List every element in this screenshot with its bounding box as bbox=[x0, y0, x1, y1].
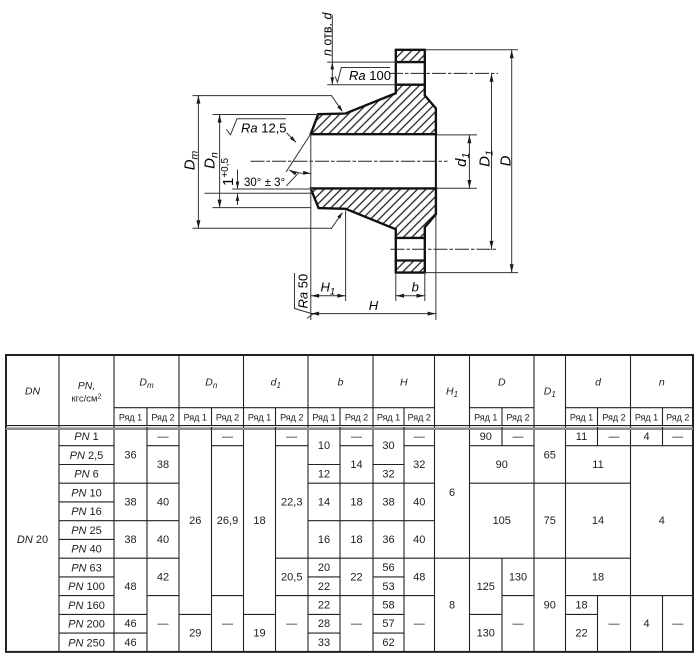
svg-text:d1: d1 bbox=[453, 153, 472, 167]
svg-text:Ряд 1: Ряд 1 bbox=[474, 413, 497, 423]
svg-text:Ряд 1: Ряд 1 bbox=[119, 413, 142, 423]
svg-text:PN 1: PN 1 bbox=[74, 431, 98, 443]
svg-text:28: 28 bbox=[318, 618, 330, 630]
svg-text:Ряд 1: Ряд 1 bbox=[248, 413, 271, 423]
svg-text:14: 14 bbox=[350, 459, 362, 471]
svg-text:32: 32 bbox=[413, 459, 425, 471]
svg-text:125: 125 bbox=[477, 581, 495, 593]
svg-text:10: 10 bbox=[318, 440, 330, 452]
svg-text:Ряд 2: Ряд 2 bbox=[280, 413, 303, 423]
svg-text:—: — bbox=[222, 431, 233, 443]
svg-text:DN: DN bbox=[25, 386, 41, 398]
svg-text:26: 26 bbox=[189, 515, 201, 527]
svg-text:57: 57 bbox=[382, 618, 394, 630]
svg-text:—: — bbox=[513, 431, 524, 443]
svg-text:65: 65 bbox=[544, 450, 556, 462]
svg-text:n: n bbox=[659, 377, 665, 389]
svg-text:18: 18 bbox=[350, 534, 362, 546]
svg-text:PN 6: PN 6 bbox=[74, 469, 98, 481]
svg-text:53: 53 bbox=[382, 581, 394, 593]
svg-text:38: 38 bbox=[124, 497, 136, 509]
svg-text:—: — bbox=[158, 618, 169, 630]
svg-text:Ряд 1: Ряд 1 bbox=[312, 413, 335, 423]
svg-text:b: b bbox=[338, 377, 344, 389]
svg-text:Dm: Dm bbox=[139, 377, 154, 391]
svg-text:40: 40 bbox=[413, 534, 425, 546]
svg-text:PN 25: PN 25 bbox=[71, 525, 102, 537]
svg-text:130: 130 bbox=[477, 628, 495, 640]
svg-text:Ra 100: Ra 100 bbox=[349, 68, 391, 83]
svg-text:D1: D1 bbox=[477, 150, 496, 167]
svg-text:—: — bbox=[158, 431, 169, 443]
svg-text:46: 46 bbox=[124, 618, 136, 630]
svg-text:PN 100: PN 100 bbox=[68, 581, 105, 593]
svg-text:Ряд 1: Ряд 1 bbox=[377, 413, 400, 423]
svg-text:18: 18 bbox=[350, 497, 362, 509]
svg-text:20,5: 20,5 bbox=[281, 571, 302, 583]
svg-text:—: — bbox=[414, 431, 425, 443]
svg-text:d1: d1 bbox=[271, 377, 281, 391]
svg-text:22,3: 22,3 bbox=[281, 497, 302, 509]
svg-text:—: — bbox=[672, 431, 683, 443]
svg-text:40: 40 bbox=[157, 534, 169, 546]
svg-text:29: 29 bbox=[189, 628, 201, 640]
svg-text:4: 4 bbox=[643, 618, 649, 630]
svg-text:Ряд 2: Ряд 2 bbox=[506, 413, 529, 423]
svg-text:18: 18 bbox=[592, 571, 604, 583]
svg-text:Ряд 1: Ряд 1 bbox=[570, 413, 593, 423]
svg-text:—: — bbox=[609, 618, 620, 630]
svg-text:32: 32 bbox=[382, 468, 394, 480]
svg-text:14: 14 bbox=[318, 497, 330, 509]
svg-text:d: d bbox=[595, 377, 602, 389]
svg-text:48: 48 bbox=[413, 571, 425, 583]
svg-text:22: 22 bbox=[350, 571, 362, 583]
svg-text:Ra 12,5: Ra 12,5 bbox=[241, 120, 287, 135]
svg-text:—: — bbox=[672, 618, 683, 630]
svg-text:33: 33 bbox=[318, 637, 330, 649]
svg-text:12: 12 bbox=[318, 468, 330, 480]
svg-text:DN 20: DN 20 bbox=[17, 534, 48, 546]
svg-text:кгс/см2: кгс/см2 bbox=[72, 394, 102, 405]
svg-text:H: H bbox=[369, 298, 379, 313]
svg-text:40: 40 bbox=[157, 497, 169, 509]
svg-text:Ряд 2: Ряд 2 bbox=[216, 413, 239, 423]
svg-text:PN 2,5: PN 2,5 bbox=[70, 450, 104, 462]
svg-text:—: — bbox=[222, 618, 233, 630]
svg-text:n отв. d: n отв. d bbox=[321, 12, 335, 56]
svg-text:4: 4 bbox=[659, 515, 665, 527]
svg-text:Dn: Dn bbox=[202, 152, 221, 169]
svg-text:H1: H1 bbox=[446, 386, 458, 400]
svg-text:90: 90 bbox=[480, 431, 492, 443]
svg-text:38: 38 bbox=[124, 534, 136, 546]
svg-text:22: 22 bbox=[575, 628, 587, 640]
svg-text:—: — bbox=[286, 431, 297, 443]
svg-text:—: — bbox=[609, 431, 620, 443]
svg-text:48: 48 bbox=[124, 581, 136, 593]
svg-text:36: 36 bbox=[124, 450, 136, 462]
svg-text:14: 14 bbox=[592, 515, 604, 527]
svg-text:b: b bbox=[412, 280, 419, 295]
svg-text:105: 105 bbox=[493, 515, 511, 527]
svg-text:D: D bbox=[498, 155, 515, 166]
svg-text:PN 200: PN 200 bbox=[68, 619, 105, 631]
svg-text:—: — bbox=[351, 618, 362, 630]
svg-text:D1: D1 bbox=[544, 386, 556, 400]
svg-text:16: 16 bbox=[318, 534, 330, 546]
svg-text:75: 75 bbox=[544, 515, 556, 527]
svg-text:—: — bbox=[351, 431, 362, 443]
svg-text:18: 18 bbox=[575, 600, 587, 612]
svg-text:—: — bbox=[414, 618, 425, 630]
svg-text:Ряд 2: Ряд 2 bbox=[666, 413, 689, 423]
svg-text:58: 58 bbox=[382, 600, 394, 612]
svg-text:Ряд 2: Ряд 2 bbox=[151, 413, 174, 423]
svg-text:40: 40 bbox=[413, 497, 425, 509]
svg-text:PN 16: PN 16 bbox=[71, 506, 102, 518]
svg-text:PN 10: PN 10 bbox=[71, 487, 102, 499]
svg-text:90: 90 bbox=[544, 600, 556, 612]
svg-text:PN 63: PN 63 bbox=[71, 562, 102, 574]
svg-text:H: H bbox=[400, 377, 408, 389]
svg-text:46: 46 bbox=[124, 637, 136, 649]
svg-text:38: 38 bbox=[382, 497, 394, 509]
svg-text:Ряд 2: Ряд 2 bbox=[408, 413, 431, 423]
svg-text:D: D bbox=[498, 377, 506, 389]
svg-text:Dm: Dm bbox=[182, 150, 201, 170]
svg-text:PN 250: PN 250 bbox=[68, 637, 105, 649]
svg-text:18: 18 bbox=[253, 515, 265, 527]
svg-text:8: 8 bbox=[449, 600, 455, 612]
svg-text:26,9: 26,9 bbox=[217, 515, 238, 527]
svg-text:30° ± 3°: 30° ± 3° bbox=[244, 177, 285, 189]
svg-text:PN 40: PN 40 bbox=[71, 544, 102, 556]
svg-text:1+0,5: 1+0,5 bbox=[220, 157, 237, 186]
svg-text:—: — bbox=[513, 618, 524, 630]
svg-text:30: 30 bbox=[382, 440, 394, 452]
svg-text:62: 62 bbox=[382, 637, 394, 649]
svg-text:Ряд 2: Ряд 2 bbox=[602, 413, 625, 423]
svg-text:42: 42 bbox=[157, 571, 169, 583]
svg-text:11: 11 bbox=[592, 459, 603, 471]
svg-text:36: 36 bbox=[382, 534, 394, 546]
svg-text:Ряд 2: Ряд 2 bbox=[345, 413, 368, 423]
svg-text:Ra 50: Ra 50 bbox=[296, 274, 311, 309]
svg-text:PN 160: PN 160 bbox=[68, 600, 105, 612]
svg-text:20: 20 bbox=[318, 562, 330, 574]
svg-text:38: 38 bbox=[157, 459, 169, 471]
svg-text:PN,: PN, bbox=[78, 380, 96, 392]
svg-text:Ряд 1: Ряд 1 bbox=[184, 413, 207, 423]
svg-text:11: 11 bbox=[576, 431, 587, 443]
svg-text:—: — bbox=[286, 618, 297, 630]
svg-text:130: 130 bbox=[509, 571, 527, 583]
svg-text:22: 22 bbox=[318, 581, 330, 593]
svg-text:H1: H1 bbox=[320, 280, 335, 298]
svg-text:4: 4 bbox=[643, 431, 649, 443]
svg-text:Ряд 1: Ряд 1 bbox=[635, 413, 658, 423]
svg-text:22: 22 bbox=[318, 600, 330, 612]
svg-text:56: 56 bbox=[382, 562, 394, 574]
svg-text:6: 6 bbox=[449, 487, 455, 499]
svg-text:19: 19 bbox=[253, 628, 265, 640]
svg-text:Dn: Dn bbox=[205, 377, 218, 391]
svg-text:90: 90 bbox=[496, 459, 508, 471]
